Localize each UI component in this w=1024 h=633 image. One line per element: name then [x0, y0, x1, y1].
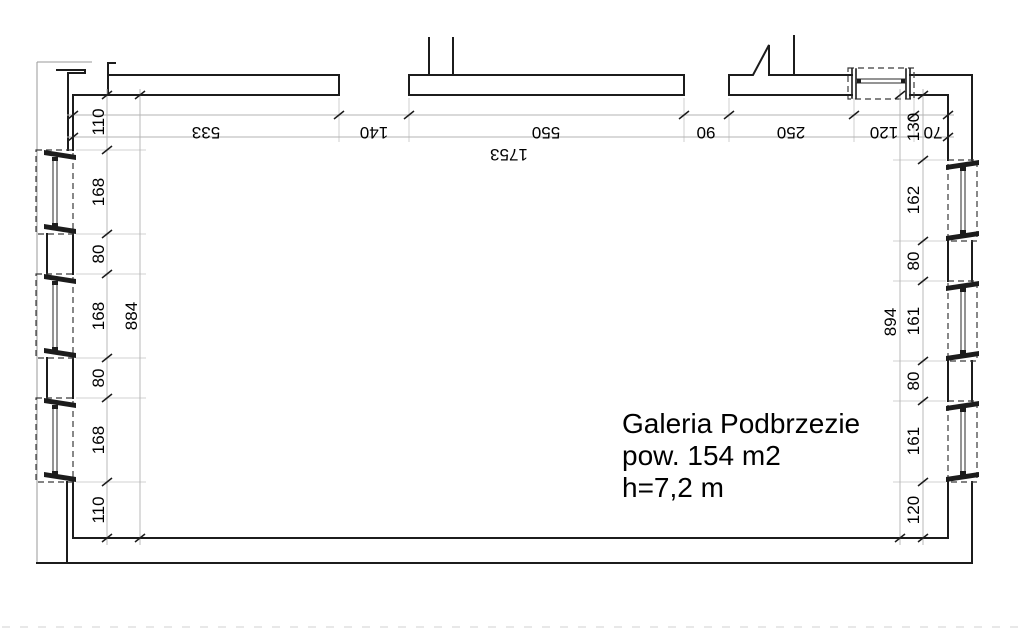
room-label: Galeria Podbrzezie pow. 154 m2 h=7,2 m	[622, 408, 860, 503]
dim-left-2: 80	[89, 245, 108, 264]
dim-left-total: 884	[122, 302, 141, 330]
right-window-2	[946, 281, 979, 361]
room-height: h=7,2 m	[622, 472, 724, 503]
room-area: pow. 154 m2	[622, 440, 781, 471]
dim-left-0: 110	[89, 108, 108, 135]
dim-top-6: 70	[924, 123, 943, 142]
top-wall-segment-right	[729, 36, 972, 95]
dim-right-2: 80	[904, 252, 923, 271]
floor-plan-drawing: 533 140 550 90 250 120 70 1753 110 168 8…	[0, 0, 1024, 633]
left-window-2	[36, 274, 76, 358]
dim-top-3: 90	[697, 123, 716, 142]
dim-right-4: 80	[904, 372, 923, 391]
dimension-labels-top: 533 140 550 90 250 120 70 1753	[192, 123, 943, 164]
dim-top-4: 250	[777, 123, 805, 142]
right-window-1	[946, 160, 979, 241]
glazing-dot	[901, 79, 905, 83]
dim-left-4: 80	[89, 369, 108, 388]
room-name: Galeria Podbrzezie	[622, 408, 860, 439]
top-wall-segment-left	[73, 63, 339, 95]
glazing-dot	[857, 79, 861, 83]
top-wall-window	[848, 68, 914, 99]
left-window-3	[36, 398, 76, 482]
top-wall-segment-middle	[409, 38, 684, 95]
dim-right-6: 120	[904, 496, 923, 524]
dim-right-0: 130	[904, 113, 923, 141]
left-wall	[47, 95, 73, 563]
dim-right-total: 894	[881, 308, 900, 336]
dim-left-6: 110	[89, 496, 108, 523]
dim-right-5: 161	[904, 427, 923, 455]
floor-plan-page: 533 140 550 90 250 120 70 1753 110 168 8…	[0, 0, 1024, 633]
right-wall	[948, 75, 972, 563]
right-window-3	[946, 401, 979, 482]
dimension-labels-right: 130 162 80 161 80 161 120 894	[881, 113, 923, 524]
dim-top-2: 550	[532, 123, 560, 142]
dim-right-1: 162	[904, 186, 923, 214]
dim-top-total: 1753	[490, 145, 528, 164]
dim-top-5: 120	[870, 123, 898, 142]
dim-right-3: 161	[904, 307, 923, 335]
dim-left-1: 168	[89, 178, 108, 206]
dim-top-1: 140	[360, 123, 388, 142]
left-window-1	[36, 150, 76, 234]
dimension-labels-left: 110 168 80 168 80 168 110 884	[89, 108, 141, 523]
dim-top-0: 533	[192, 123, 220, 142]
dim-left-5: 168	[89, 426, 108, 454]
bottom-wall	[37, 538, 972, 563]
dim-left-3: 168	[89, 302, 108, 330]
